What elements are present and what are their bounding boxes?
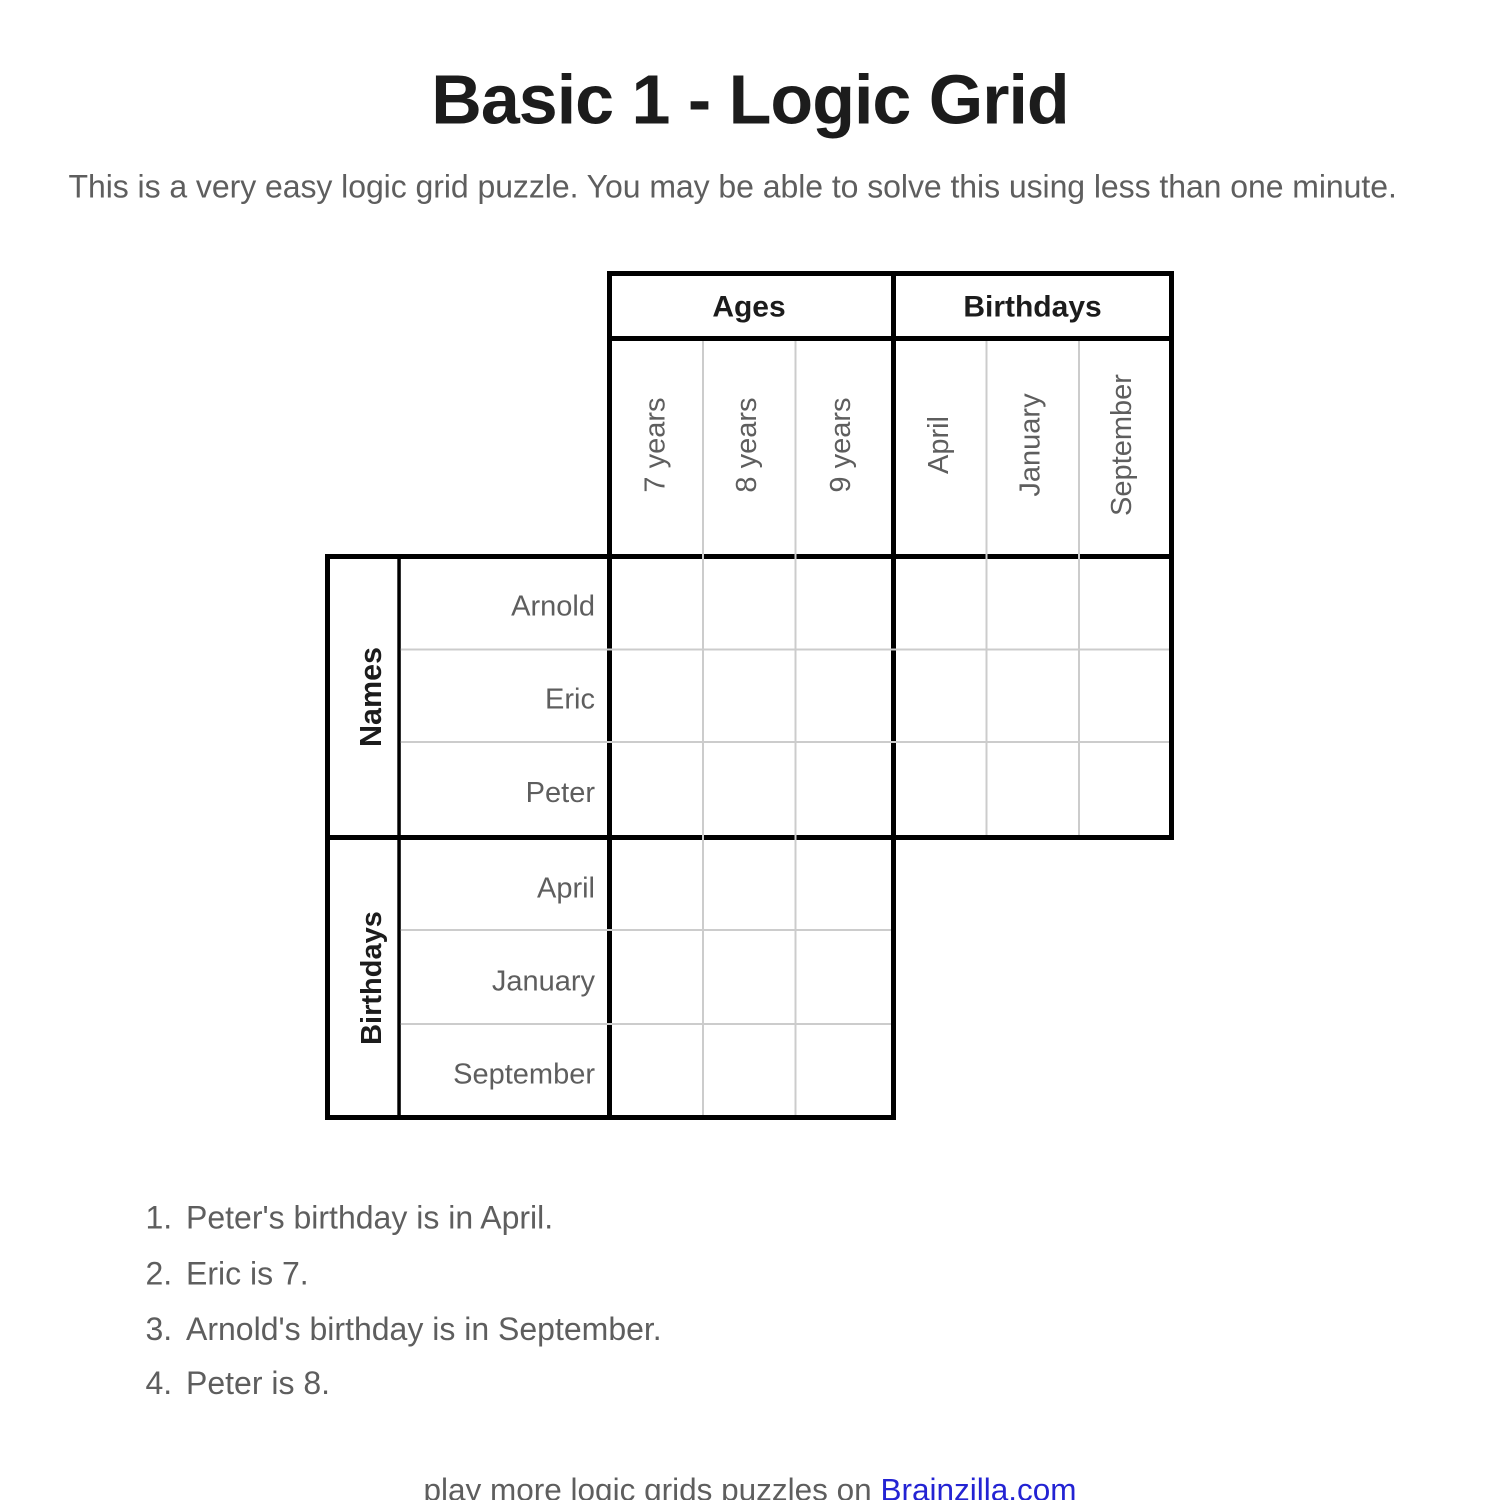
svg-text:January: January	[1015, 393, 1047, 497]
svg-text:2.Eric is 7.: 2.Eric is 7.	[146, 1256, 309, 1292]
svg-text:This is a very easy logic grid: This is a very easy logic grid puzzle. Y…	[69, 169, 1397, 205]
svg-text:Ages: Ages	[712, 291, 785, 324]
svg-text:April: April	[537, 873, 595, 905]
svg-text:September: September	[453, 1059, 595, 1091]
svg-text:7 years: 7 years	[640, 397, 672, 492]
svg-text:Birthdays: Birthdays	[356, 911, 388, 1045]
svg-text:April: April	[923, 416, 955, 474]
svg-text:Basic 1 - Logic Grid: Basic 1 - Logic Grid	[431, 61, 1068, 139]
svg-text:Arnold: Arnold	[511, 590, 595, 622]
svg-text:September: September	[1106, 374, 1138, 516]
svg-text:Names: Names	[354, 647, 388, 747]
svg-text:Eric: Eric	[545, 684, 595, 716]
svg-text:January: January	[492, 966, 596, 998]
svg-text:Peter: Peter	[526, 777, 596, 809]
svg-text:9 years: 9 years	[825, 397, 857, 492]
svg-text:3.Arnold's birthday is in Sept: 3.Arnold's birthday is in September.	[146, 1311, 662, 1347]
svg-text:8 years: 8 years	[731, 397, 763, 492]
svg-text:Birthdays: Birthdays	[963, 291, 1101, 324]
svg-text:1.Peter's birthday is in April: 1.Peter's birthday is in April.	[146, 1200, 554, 1236]
svg-text:play more logic grids puzzles: play more logic grids puzzles on Brainzi…	[423, 1472, 1076, 1501]
